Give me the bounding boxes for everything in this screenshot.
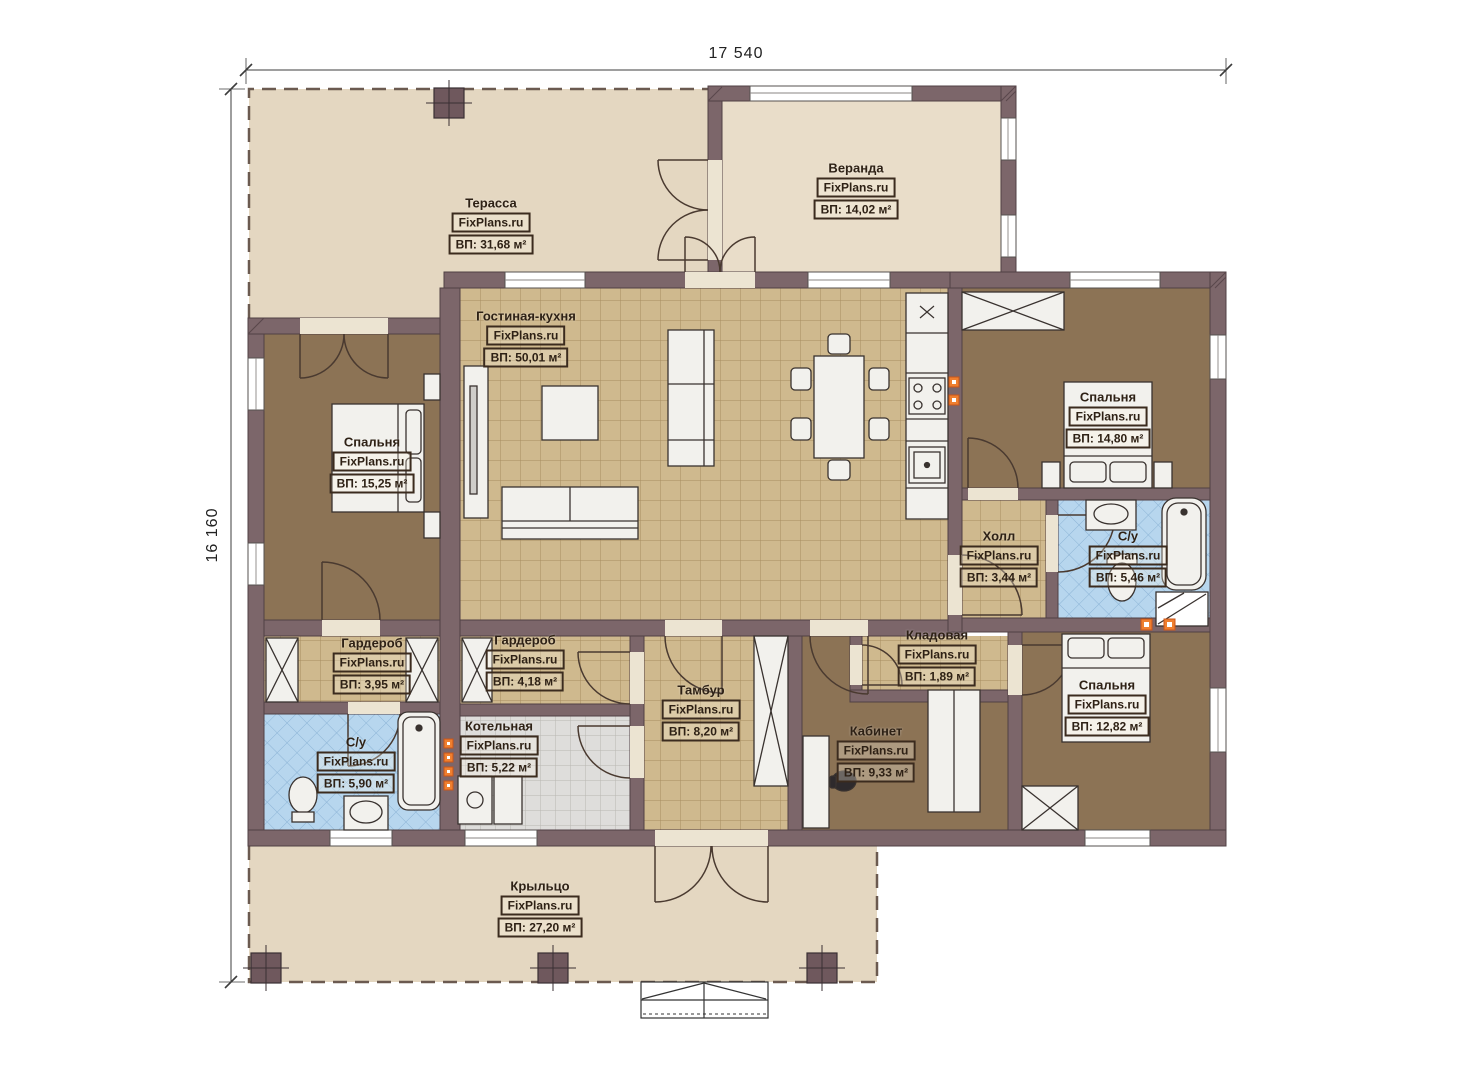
room-watermark: FixPlans.ru (662, 700, 741, 720)
room-watermark: FixPlans.ru (898, 645, 977, 665)
room-name: Гардероб (341, 636, 402, 651)
room-area: ВП: 3,95 м² (333, 675, 411, 695)
room-watermark: FixPlans.ru (960, 546, 1039, 566)
room-watermark: FixPlans.ru (333, 452, 412, 472)
room-area: ВП: 5,90 м² (317, 774, 395, 794)
room-label-living-kitchen: Гостиная-кухня FixPlans.ru ВП: 50,01 м² (476, 309, 576, 368)
room-watermark: FixPlans.ru (317, 752, 396, 772)
room-area: ВП: 31,68 м² (449, 235, 534, 255)
room-label-bathroom-1: С/у FixPlans.ru ВП: 5,90 м² (317, 735, 396, 794)
desk (803, 736, 829, 828)
coffee-table (542, 386, 598, 440)
room-watermark: FixPlans.ru (817, 178, 896, 198)
dimension-left-label: 16 160 (204, 508, 222, 563)
toilet-1 (289, 777, 317, 822)
room-name: С/у (346, 735, 366, 750)
room-name: Котельная (465, 719, 533, 734)
room-area: ВП: 3,44 м² (960, 568, 1038, 588)
room-area: ВП: 9,33 м² (837, 763, 915, 783)
room-name: Холл (983, 529, 1016, 544)
sink-2 (1086, 500, 1136, 530)
room-name: Спальня (1079, 678, 1135, 693)
room-label-bedroom-2: Спальня FixPlans.ru ВП: 14,80 м² (1066, 390, 1151, 449)
room-label-boiler: Котельная FixPlans.ru ВП: 5,22 м² (460, 719, 539, 778)
room-watermark: FixPlans.ru (1089, 546, 1168, 566)
entry-steps (641, 982, 768, 1018)
room-area: ВП: 15,25 м² (330, 474, 415, 494)
room-label-wardrobe-2: Гардероб FixPlans.ru ВП: 4,18 м² (486, 633, 565, 692)
room-name: Гардероб (494, 633, 555, 648)
room-name: Кабинет (850, 724, 903, 739)
room-watermark: FixPlans.ru (1069, 407, 1148, 427)
dimension-top-label: 17 540 (709, 45, 764, 63)
room-area: ВП: 27,20 м² (498, 918, 583, 938)
room-area: ВП: 8,20 м² (662, 722, 740, 742)
room-watermark: FixPlans.ru (501, 896, 580, 916)
room-area: ВП: 50,01 м² (484, 348, 569, 368)
bathtub-1 (398, 712, 440, 810)
room-area: ВП: 12,82 м² (1065, 717, 1150, 737)
wardrobe-x-bedroom-3 (1022, 786, 1078, 830)
room-watermark: FixPlans.ru (333, 653, 412, 673)
wardrobe-x-vestibule (754, 636, 788, 786)
sofa (502, 487, 638, 539)
room-area: ВП: 14,80 м² (1066, 429, 1151, 449)
room-label-bedroom-3: Спальня FixPlans.ru ВП: 12,82 м² (1065, 678, 1150, 737)
nightstand (424, 374, 440, 400)
room-watermark: FixPlans.ru (486, 650, 565, 670)
room-watermark: FixPlans.ru (487, 326, 566, 346)
room-area: ВП: 5,46 м² (1089, 568, 1167, 588)
room-label-storage: Кладовая FixPlans.ru ВП: 1,89 м² (898, 628, 977, 687)
kitchen-counter (906, 293, 948, 519)
room-name: С/у (1118, 529, 1138, 544)
room-area: ВП: 5,22 м² (460, 758, 538, 778)
room-label-veranda: Веранда FixPlans.ru ВП: 14,02 м² (814, 161, 899, 220)
room-watermark: FixPlans.ru (837, 741, 916, 761)
room-label-hall: Холл FixPlans.ru ВП: 3,44 м² (960, 529, 1039, 588)
office-cabinet (928, 690, 980, 812)
room-label-vestibule: Тамбур FixPlans.ru ВП: 8,20 м² (662, 683, 741, 742)
room-watermark: FixPlans.ru (1068, 695, 1147, 715)
room-name: Кладовая (906, 628, 968, 643)
room-name: Крыльцо (510, 879, 569, 894)
room-name: Тамбур (677, 683, 724, 698)
room-label-bedroom-1: Спальня FixPlans.ru ВП: 15,25 м² (330, 435, 415, 494)
room-label-wardrobe-1: Гардероб FixPlans.ru ВП: 3,95 м² (333, 636, 412, 695)
floor-plan: 17 540 16 160 Терасса FixPlans.ru ВП: 31… (0, 0, 1473, 1080)
room-label-terrace: Терасса FixPlans.ru ВП: 31,68 м² (449, 196, 534, 255)
room-label-porch: Крыльцо FixPlans.ru ВП: 27,20 м² (498, 879, 583, 938)
nightstand (1042, 462, 1060, 488)
nightstand (1154, 462, 1172, 488)
bathtub-2 (1162, 498, 1206, 590)
room-name: Спальня (344, 435, 400, 450)
room-watermark: FixPlans.ru (452, 213, 531, 233)
room-area: ВП: 4,18 м² (486, 672, 564, 692)
room-watermark: FixPlans.ru (460, 736, 539, 756)
sink-1 (344, 796, 388, 830)
room-name: Гостиная-кухня (476, 309, 576, 324)
room-name: Терасса (465, 196, 517, 211)
boiler-equipment (458, 776, 522, 824)
room-label-bathroom-2: С/у FixPlans.ru ВП: 5,46 м² (1089, 529, 1168, 588)
room-name: Веранда (828, 161, 883, 176)
room-label-office: Кабинет FixPlans.ru ВП: 9,33 м² (837, 724, 916, 783)
wardrobe-x-bedroom-2 (962, 292, 1064, 330)
room-area: ВП: 14,02 м² (814, 200, 899, 220)
nightstand (424, 512, 440, 538)
shelf-unit (668, 330, 714, 466)
room-name: Спальня (1080, 390, 1136, 405)
room-area: ВП: 1,89 м² (898, 667, 976, 687)
